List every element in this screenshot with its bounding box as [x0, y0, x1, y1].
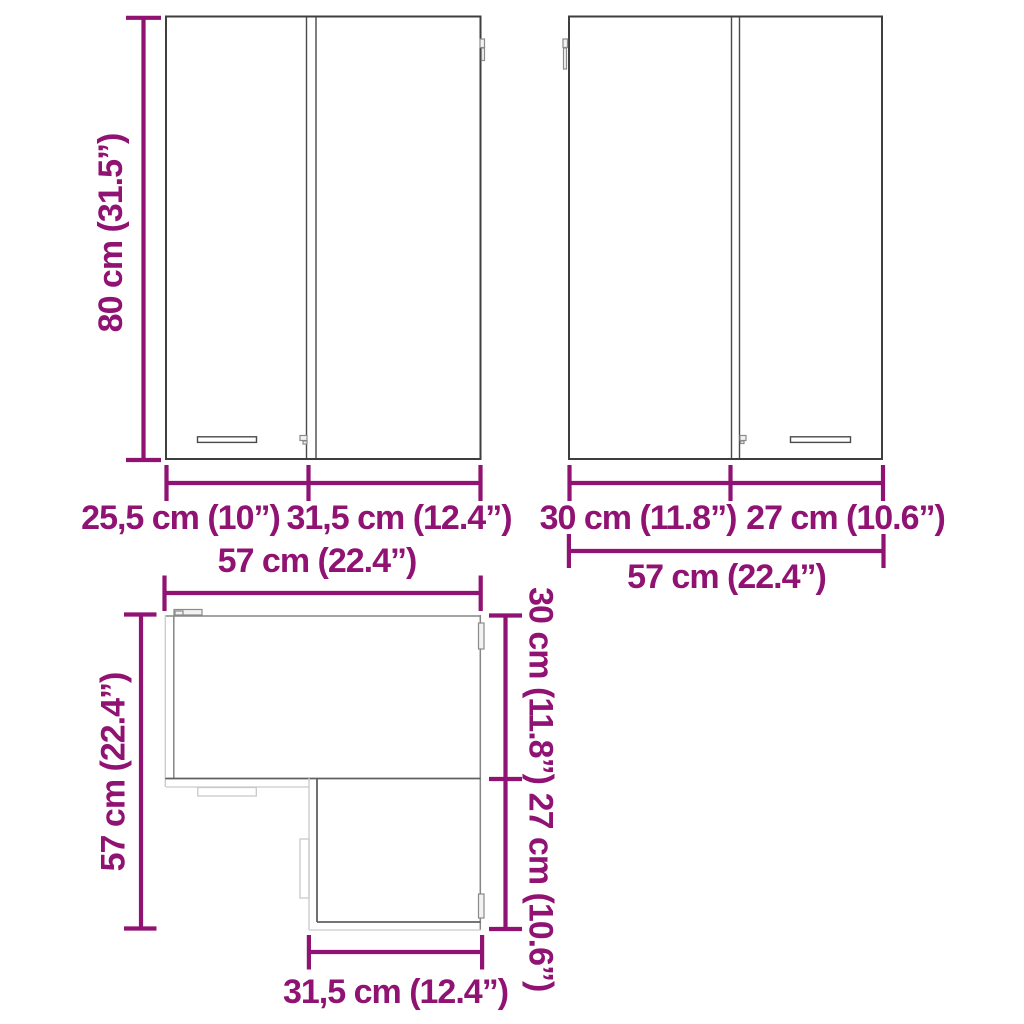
svg-text:31,5 cm (12.4”): 31,5 cm (12.4”) — [286, 499, 511, 537]
svg-text:57 cm (22.4”): 57 cm (22.4”) — [218, 542, 417, 580]
svg-text:30 cm (11.8”): 30 cm (11.8”) — [540, 499, 737, 537]
svg-text:57 cm (22.4”): 57 cm (22.4”) — [627, 558, 826, 596]
svg-text:31,5 cm (12.4”): 31,5 cm (12.4”) — [283, 973, 508, 1011]
svg-text:57 cm (22.4”): 57 cm (22.4”) — [95, 673, 133, 872]
svg-text:25,5 cm (10”): 25,5 cm (10”) — [81, 499, 280, 537]
svg-text:30 cm (11.8”): 30 cm (11.8”) — [522, 587, 560, 784]
svg-text:27 cm (10.6”): 27 cm (10.6”) — [522, 793, 560, 992]
svg-text:80 cm (31.5”): 80 cm (31.5”) — [92, 134, 130, 333]
svg-text:27 cm (10.6”): 27 cm (10.6”) — [746, 499, 945, 537]
